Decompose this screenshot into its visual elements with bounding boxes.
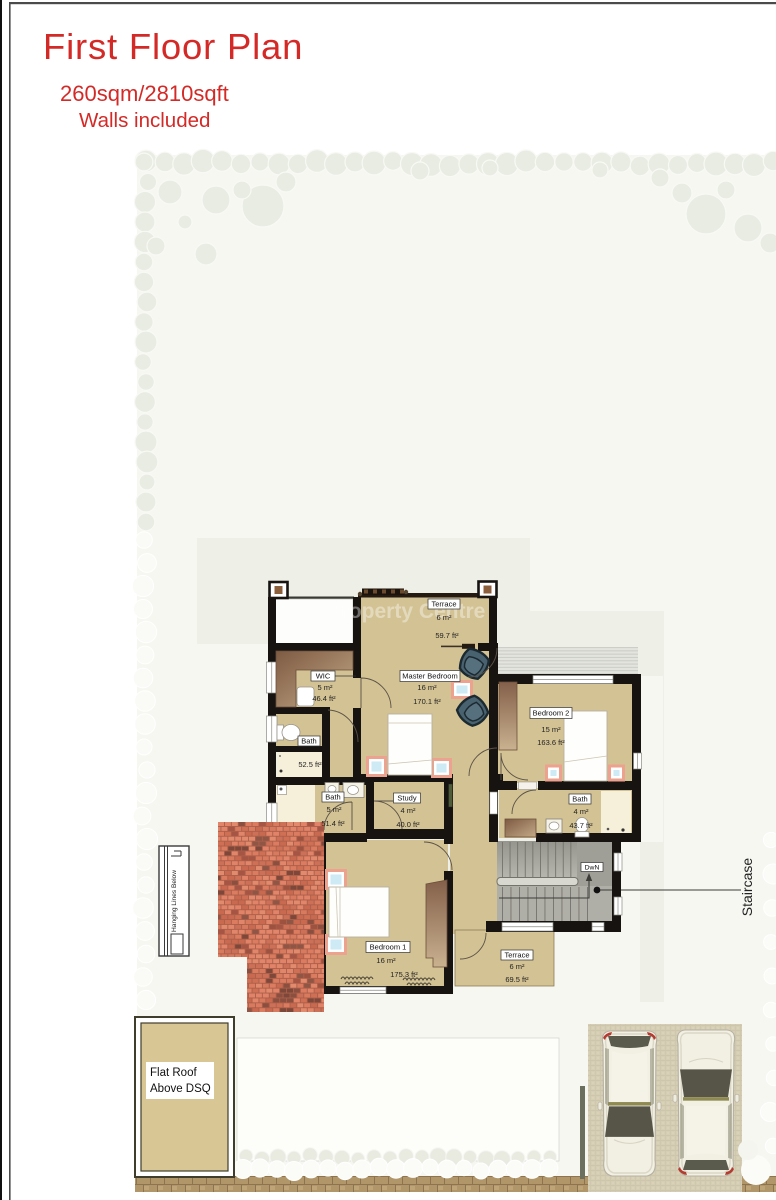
svg-text:163.6 ft²: 163.6 ft² [537, 738, 565, 747]
svg-text:Bedroom 2: Bedroom 2 [533, 709, 570, 718]
svg-text:52.5 ft²: 52.5 ft² [298, 760, 322, 769]
svg-text:DwN: DwN [585, 864, 600, 871]
svg-text:6 m²: 6 m² [437, 613, 453, 622]
svg-text:Hanging Lines Below: Hanging Lines Below [171, 870, 178, 932]
svg-text:Above DSQ: Above DSQ [150, 1083, 211, 1095]
svg-text:260sqm/2810sqft: 260sqm/2810sqft [60, 81, 229, 106]
svg-text:69.5 ft²: 69.5 ft² [505, 975, 529, 984]
svg-text:Flat Roof: Flat Roof [150, 1067, 197, 1079]
svg-text:WIC: WIC [316, 672, 331, 681]
svg-text:40.0 ft²: 40.0 ft² [396, 820, 420, 829]
svg-text:5 m²: 5 m² [327, 805, 343, 814]
svg-text:Walls included: Walls included [79, 109, 210, 132]
svg-text:Terrace: Terrace [431, 600, 456, 609]
svg-text:Bedroom 1: Bedroom 1 [370, 943, 407, 952]
svg-text:175.3 ft²: 175.3 ft² [390, 970, 418, 979]
svg-text:Bath: Bath [572, 795, 587, 804]
svg-text:170.1 ft²: 170.1 ft² [413, 697, 441, 706]
svg-text:43.7 ft²: 43.7 ft² [569, 821, 593, 830]
svg-text:5 m²: 5 m² [318, 683, 334, 692]
svg-text:59.7 ft²: 59.7 ft² [435, 631, 459, 640]
svg-text:51.4 ft²: 51.4 ft² [321, 819, 345, 828]
svg-text:Terrace: Terrace [504, 951, 529, 960]
svg-text:Bath: Bath [301, 737, 316, 746]
svg-text:6 m²: 6 m² [510, 962, 526, 971]
svg-text:First Floor Plan: First Floor Plan [43, 26, 303, 67]
svg-text:46.4 ft²: 46.4 ft² [312, 694, 336, 703]
svg-text:16 m²: 16 m² [417, 683, 437, 692]
svg-text:4 m²: 4 m² [401, 806, 417, 815]
svg-text:Study: Study [397, 794, 416, 803]
svg-text:Property Centre: Property Centre [327, 600, 486, 623]
svg-text:Staircase: Staircase [739, 858, 755, 917]
svg-text:15 m²: 15 m² [541, 725, 561, 734]
svg-text:Bath: Bath [325, 793, 340, 802]
svg-text:4 m²: 4 m² [574, 807, 590, 816]
svg-text:Master Bedroom: Master Bedroom [402, 672, 457, 681]
svg-text:16 m²: 16 m² [376, 956, 396, 965]
